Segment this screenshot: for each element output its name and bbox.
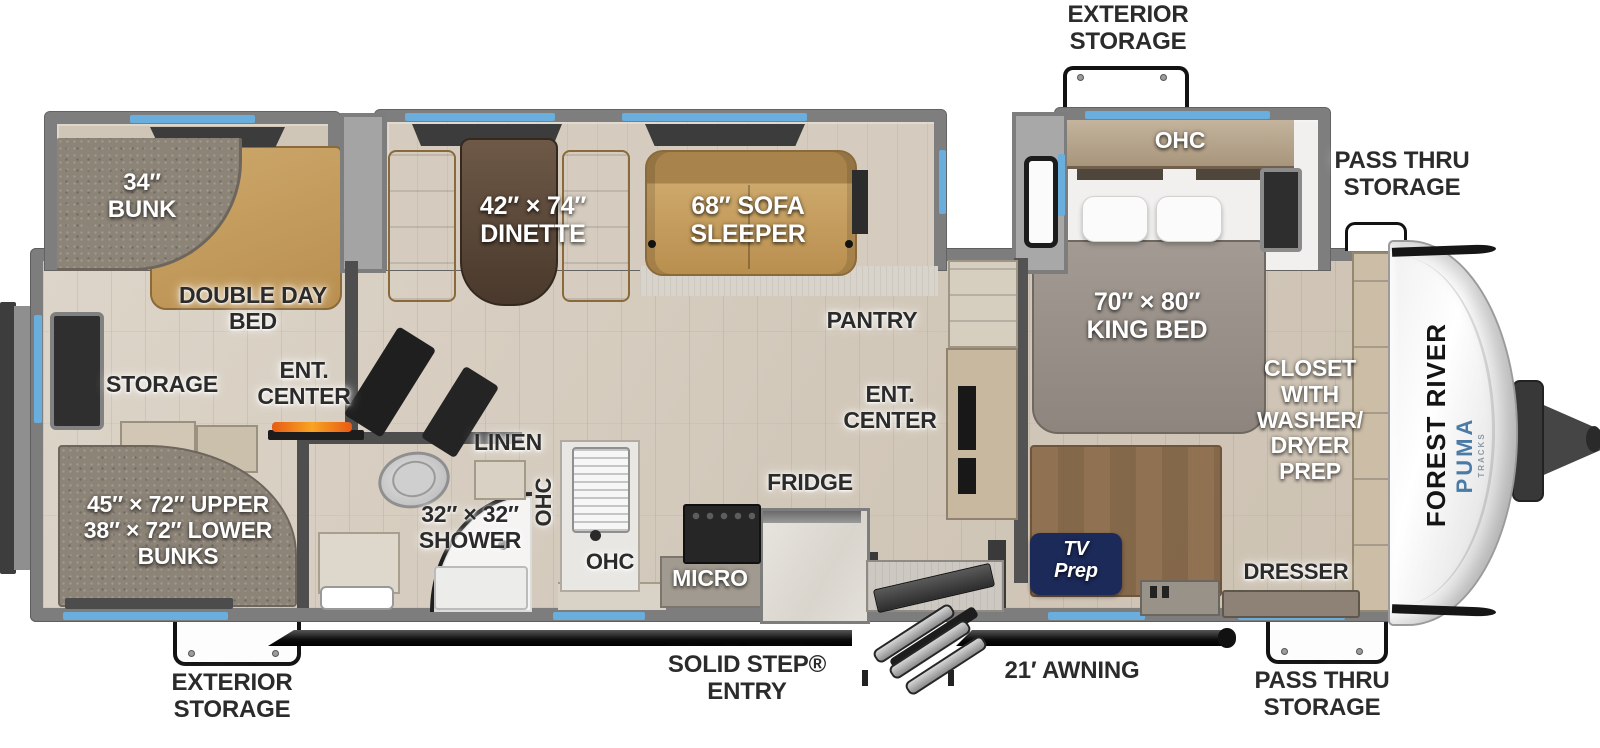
cup-holder <box>845 240 853 248</box>
label-bunk: 34″ BUNK <box>108 170 177 224</box>
label-fridge: FRIDGE <box>767 470 853 496</box>
pantry-cabinet <box>948 260 1018 348</box>
label-kitchen-ohc: OHC <box>586 550 634 575</box>
screw <box>188 650 195 657</box>
label-living-ent-center: ENT. CENTER <box>843 382 936 434</box>
label-pantry: PANTRY <box>827 308 918 334</box>
brand-puma: PUMA <box>1452 390 1478 520</box>
label-exterior-storage-top: EXTERIOR STORAGE <box>1067 2 1188 56</box>
cabinet-shadow <box>1077 169 1163 180</box>
label-shower: 32″ × 32″ SHOWER <box>419 502 521 554</box>
window-strip <box>63 612 228 620</box>
label-exterior-storage-bottom: EXTERIOR STORAGE <box>171 670 292 724</box>
window-strip <box>1058 154 1065 216</box>
label-double-day-bed: DOUBLE DAY BED <box>179 283 327 335</box>
bench-slot <box>1162 586 1169 598</box>
side-window <box>852 170 868 234</box>
window-strip <box>553 612 645 620</box>
fridge-top <box>763 511 861 523</box>
awning-rail-right <box>956 630 1222 646</box>
window-strip <box>130 115 255 123</box>
window-strip <box>405 113 555 121</box>
window-strip <box>1085 111 1270 119</box>
kitchen-sink <box>572 447 630 533</box>
pillow <box>1156 196 1222 242</box>
label-closet: CLOSET WITH WASHER/ DRYER PREP <box>1257 356 1363 485</box>
window-strip <box>1048 612 1145 620</box>
ent-center-cabinet <box>946 348 1018 520</box>
awning-rail-left <box>268 630 852 646</box>
shower-base <box>434 566 528 610</box>
tv-slot <box>958 386 976 450</box>
window-strip <box>939 150 946 214</box>
label-solid-step-entry: SOLID STEP® ENTRY <box>668 652 826 706</box>
label-bath-ohc: OHC <box>531 467 555 537</box>
label-tv-prep: TV Prep <box>1054 538 1098 583</box>
floorplan-canvas: 34″ BUNK 42″ × 74″ DINETTE 68″ SOFA SLEE… <box>0 0 1600 748</box>
label-dresser: DRESSER <box>1244 560 1349 585</box>
step-leg <box>862 670 868 686</box>
bath-sink <box>320 586 394 610</box>
label-king-bed: 70″ × 80″ KING BED <box>1087 288 1208 344</box>
label-bunks: 45″ × 72″ UPPER 38″ × 72″ LOWER BUNKS <box>84 492 272 569</box>
brand-forest-river: FOREST RIVER <box>1421 280 1453 570</box>
hitch-coupler <box>1586 426 1600 452</box>
dinette-bench <box>388 150 456 302</box>
tv-slot <box>958 458 976 494</box>
screw <box>1356 648 1363 655</box>
bay-window <box>1024 156 1058 248</box>
brand-tracks: TRACKS <box>1477 420 1489 490</box>
label-dinette: 42″ × 74″ DINETTE <box>480 192 586 248</box>
dresser <box>1222 590 1360 618</box>
label-pass-thru-bottom: PASS THRU STORAGE <box>1254 668 1389 722</box>
label-rear-ent-center: ENT. CENTER <box>257 358 350 410</box>
label-awning: 21′ AWNING <box>1005 658 1140 685</box>
label-linen: LINEN <box>474 430 542 456</box>
bathroom-wall <box>297 432 309 608</box>
label-micro: MICRO <box>672 566 748 592</box>
window-strip <box>34 315 42 423</box>
screw <box>1077 74 1084 81</box>
window-strip <box>622 113 807 121</box>
fridge <box>760 508 870 624</box>
label-sofa-sleeper: 68″ SOFA SLEEPER <box>690 192 805 248</box>
screw <box>1281 648 1288 655</box>
window-valance <box>645 124 805 146</box>
awning-rail-cap <box>1218 628 1236 648</box>
pillow <box>1082 196 1148 242</box>
bedroom-window <box>1260 168 1302 252</box>
stove-burners <box>687 507 755 521</box>
label-pass-thru-top: PASS THRU STORAGE <box>1334 148 1469 202</box>
wall-column <box>340 113 386 273</box>
bench-slot <box>1150 586 1157 598</box>
screw <box>272 650 279 657</box>
bunkroom-window <box>50 312 104 430</box>
label-bedroom-ohc: OHC <box>1155 128 1206 154</box>
screw <box>1160 74 1167 81</box>
label-storage: STORAGE <box>106 372 218 398</box>
fireplace-flame <box>272 422 352 432</box>
linen-cabinet <box>474 460 526 500</box>
bunk-rail <box>65 598 233 609</box>
bath-vanity <box>318 532 400 594</box>
cup-holder <box>648 240 656 248</box>
pass-thru-door-bottom <box>1266 622 1388 664</box>
faucet <box>590 530 601 541</box>
